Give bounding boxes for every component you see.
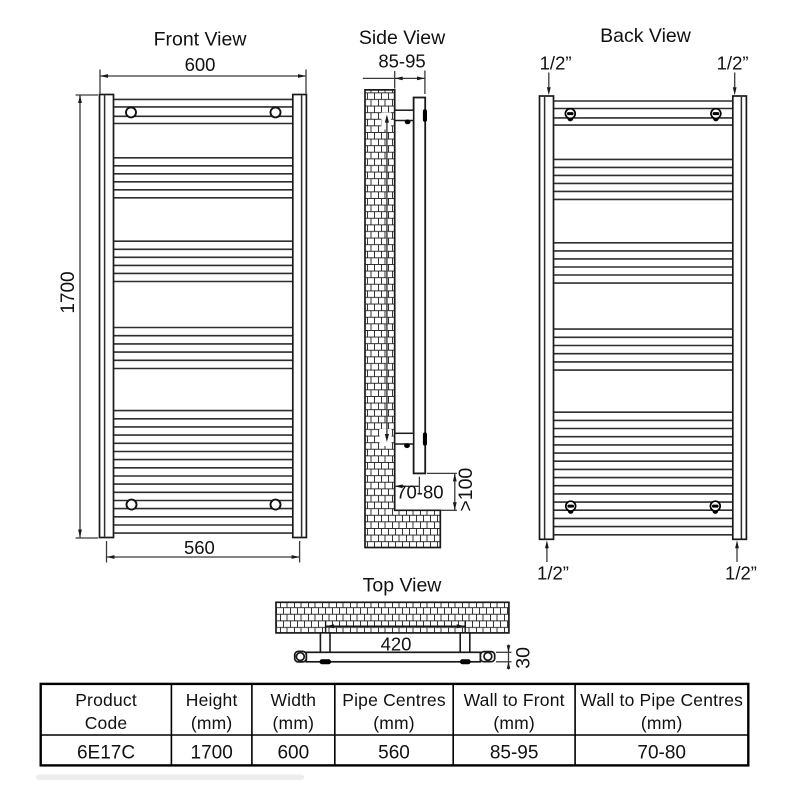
svg-text:600: 600 <box>277 743 309 764</box>
svg-text:1/2”: 1/2” <box>717 53 749 74</box>
svg-text:Side View: Side View <box>359 27 446 49</box>
svg-text:1700: 1700 <box>58 271 79 313</box>
svg-text:1/2”: 1/2” <box>537 563 569 584</box>
svg-text:70-80: 70-80 <box>396 482 443 503</box>
svg-text:560: 560 <box>184 537 215 558</box>
svg-text:(mm): (mm) <box>641 713 683 733</box>
svg-text:600: 600 <box>185 54 216 75</box>
svg-text:>100: >100 <box>455 468 477 512</box>
svg-text:30: 30 <box>513 647 535 669</box>
svg-text:70-80: 70-80 <box>637 743 686 764</box>
svg-text:Pipe Centres: Pipe Centres <box>342 690 446 710</box>
svg-text:Product: Product <box>75 690 137 710</box>
svg-text:Code: Code <box>85 713 128 733</box>
svg-text:(mm): (mm) <box>493 713 535 733</box>
svg-text:Top View: Top View <box>363 575 443 597</box>
svg-text:85-95: 85-95 <box>378 51 425 72</box>
svg-text:1700: 1700 <box>191 743 233 764</box>
svg-text:6E17C: 6E17C <box>77 743 135 764</box>
svg-text:Width: Width <box>270 690 316 710</box>
svg-text:Height: Height <box>186 690 238 710</box>
svg-text:Wall to Front: Wall to Front <box>464 690 565 710</box>
svg-text:1/2”: 1/2” <box>540 53 572 74</box>
svg-text:560: 560 <box>378 743 410 764</box>
svg-text:(mm): (mm) <box>373 713 415 733</box>
svg-text:(mm): (mm) <box>273 713 315 733</box>
svg-text:Back View: Back View <box>600 25 692 47</box>
svg-text:Wall to Pipe Centres: Wall to Pipe Centres <box>580 690 743 710</box>
svg-text:Front View: Front View <box>154 29 248 51</box>
svg-text:1/2”: 1/2” <box>725 563 757 584</box>
svg-text:85-95: 85-95 <box>490 743 539 764</box>
svg-text:420: 420 <box>381 634 412 655</box>
svg-text:(mm): (mm) <box>191 713 233 733</box>
